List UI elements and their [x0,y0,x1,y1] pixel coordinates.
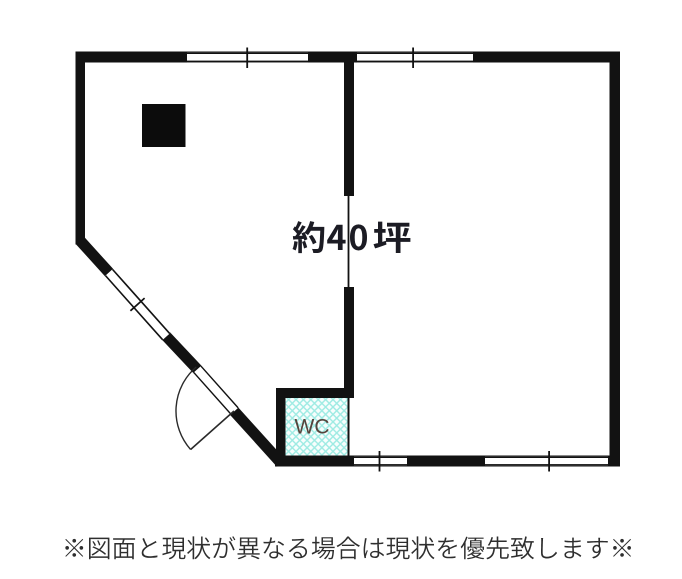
svg-text:WC: WC [295,416,330,439]
